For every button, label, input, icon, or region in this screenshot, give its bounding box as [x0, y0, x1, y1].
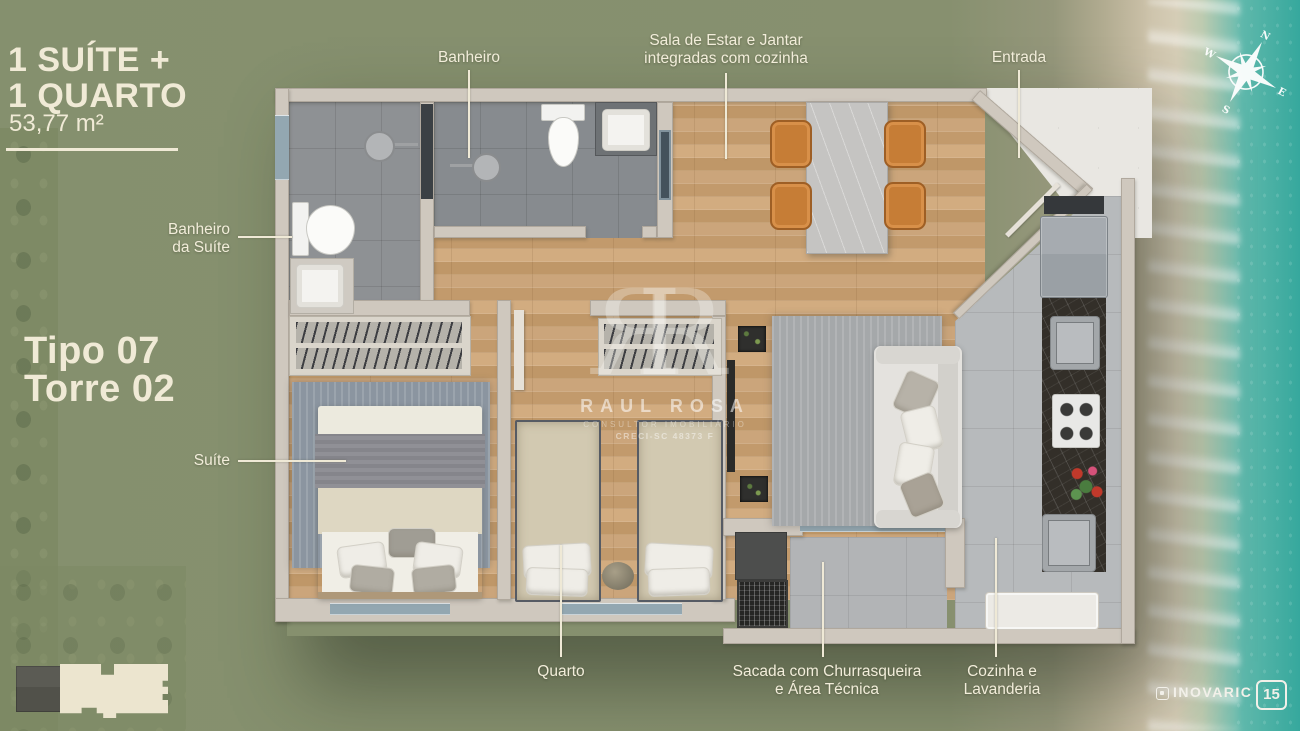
dining-table: [806, 102, 888, 254]
label-banheiro-suite: Banheiro da Suíte: [118, 221, 230, 257]
window-suite-bathroom: [275, 115, 289, 180]
title-area: 53,77 m²: [9, 110, 104, 138]
kitchen-cabinet-top: [1044, 196, 1104, 214]
cooktop: [1052, 394, 1100, 448]
compass-n: N: [1258, 29, 1271, 43]
watermark-name: RAUL ROSA: [575, 396, 755, 417]
wall-outer-top: [275, 88, 987, 102]
inovaric-logo-text: INOVARIC: [1173, 684, 1252, 700]
wall-suite-quarto: [497, 300, 511, 600]
window-quarto: [560, 603, 682, 615]
sink-bath: [602, 109, 650, 151]
closet-suite: [289, 316, 471, 376]
label-cozinha-line1: Cozinha e: [942, 663, 1062, 681]
leader-entrada: [1018, 70, 1020, 158]
compass-icon: N E S W: [1198, 24, 1294, 120]
label-sacada: Sacada com Churrasqueira e Área Técnica: [697, 663, 957, 699]
label-entrada: Entrada: [959, 49, 1079, 67]
churrasqueira-grill: [737, 580, 788, 628]
inovaric-logo-icon: [1156, 687, 1169, 700]
watermark: R R RAUL ROSA CONSULTOR IMOBILIÁRIO CREC…: [575, 278, 755, 446]
sofa: [874, 346, 962, 528]
leader-banheiro: [468, 70, 470, 158]
title-underline: [6, 148, 178, 151]
label-cozinha: Cozinha e Lavanderia: [942, 663, 1062, 699]
label-banheiro-suite-line2: da Suíte: [118, 239, 230, 257]
leader-cozinha: [995, 538, 997, 657]
leader-sacada: [822, 562, 824, 657]
fridge: [1040, 216, 1108, 298]
watermark-creci: CRECI-SC 48373 F: [575, 431, 755, 441]
compass-w: W: [1201, 46, 1218, 62]
floorplan-scene: R R RAUL ROSA CONSULTOR IMOBILIÁRIO CREC…: [0, 0, 1300, 731]
wall-bathroom-bottom: [434, 226, 586, 238]
bed-quarto-2: [637, 420, 723, 602]
bed-quarto-1: [515, 420, 601, 602]
bed-quarto-1-pillow2: [526, 567, 589, 597]
kitchen-sink-bottom: [1042, 514, 1096, 572]
dining-chair-3: [884, 120, 926, 168]
media-box-bottom: [740, 476, 768, 502]
dining-chair-1: [770, 120, 812, 168]
label-sacada-line1: Sacada com Churrasqueira: [697, 663, 957, 681]
compass-s: S: [1220, 104, 1232, 117]
leader-quarto: [560, 545, 562, 657]
duct-shaft-1: [421, 104, 433, 199]
title-line1: 1 SUÍTE +: [8, 41, 170, 80]
label-sacada-line2: e Área Técnica: [697, 681, 957, 699]
sofa-arm-top: [876, 346, 960, 364]
bed-suite-frame: [318, 592, 482, 599]
dining-chair-2: [770, 182, 812, 230]
duct-shaft-2: [659, 130, 671, 200]
unit-line2: Torre 02: [24, 368, 175, 411]
label-sala-line1: Sala de Estar e Jantar: [616, 32, 836, 50]
dining-chair-4: [884, 182, 926, 230]
watermark-monogram-right: R: [637, 274, 726, 392]
inovaric-logo-icon-dot: [1160, 691, 1164, 695]
label-sala: Sala de Estar e Jantar integradas com co…: [616, 32, 836, 68]
label-sala-line2: integradas com cozinha: [616, 50, 836, 68]
leader-banheiro-suite: [238, 236, 292, 238]
flower-arrangement: [1064, 458, 1108, 510]
badge-15: 15: [1256, 680, 1287, 710]
label-suite: Suíte: [118, 452, 230, 470]
closet-suite-rail-top: [296, 322, 462, 343]
leader-suite: [238, 460, 346, 462]
closet-suite-rail-bottom: [296, 348, 462, 369]
quarto-door-leaf: [514, 310, 524, 390]
bed-suite: [318, 406, 482, 598]
watermark-subtitle: CONSULTOR IMOBILIÁRIO: [575, 420, 755, 429]
unit-line1: Tipo 07: [24, 330, 160, 373]
leader-sala: [725, 73, 727, 159]
shower-head-bath-icon: [472, 153, 501, 182]
wall-bathroom-bottom-stub: [642, 226, 657, 238]
label-banheiro-suite-line1: Banheiro: [118, 221, 230, 239]
label-quarto: Quarto: [501, 663, 621, 681]
room-balcony-floor: [790, 537, 947, 630]
bed-suite-top-sheet: [318, 406, 482, 436]
wall-balcony-bottom: [723, 628, 1135, 644]
washer-bench: [985, 592, 1099, 630]
bed-quarto-2-pillow2: [648, 567, 711, 597]
wall-outer-right: [1121, 178, 1135, 644]
grill-counter: [735, 532, 787, 580]
label-banheiro: Banheiro: [409, 49, 529, 67]
unit-keyplan-icon: [60, 658, 168, 718]
kitchen-sink-top: [1050, 316, 1100, 370]
label-cozinha-line2: Lavanderia: [942, 681, 1062, 699]
compass-e: E: [1276, 86, 1288, 99]
wall-balcony-laundry: [945, 518, 965, 588]
window-suite: [330, 603, 450, 615]
shower-head-suite-icon: [364, 131, 395, 162]
sink-suite: [296, 264, 344, 308]
decor-stone: [602, 562, 634, 590]
